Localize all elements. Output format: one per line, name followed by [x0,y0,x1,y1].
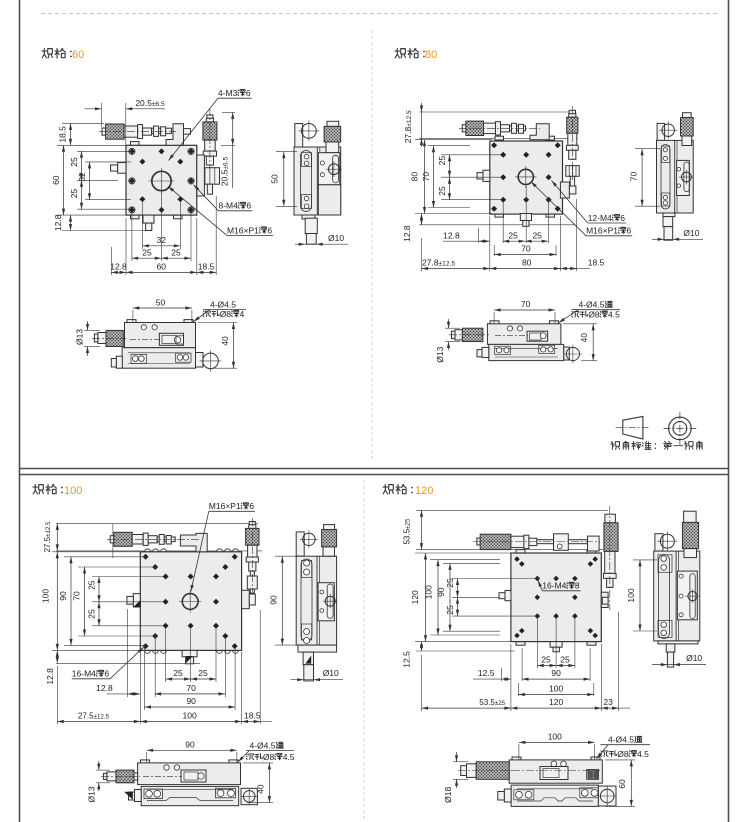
svg-text:50: 50 [270,174,280,184]
svg-text:Ø8: Ø8 [220,309,232,319]
svg-text:25: 25 [87,580,97,590]
svg-text:25: 25 [173,668,183,678]
svg-text:60: 60 [157,261,167,271]
svg-text:90: 90 [551,668,561,678]
svg-text:M16×P1: M16×P1 [586,226,618,236]
svg-text:100: 100 [64,485,82,497]
svg-text:4-Ø4.5: 4-Ø4.5 [608,735,634,745]
svg-text:Ø8: Ø8 [588,310,600,320]
svg-text:6: 6 [246,201,251,211]
svg-text:90: 90 [58,591,68,601]
svg-text:70: 70 [521,299,531,309]
svg-text:4.5: 4.5 [283,752,295,762]
svg-text:32: 32 [77,172,87,182]
svg-text:6: 6 [249,501,254,511]
svg-text:70: 70 [421,172,431,182]
svg-text:27.5±12.5: 27.5±12.5 [43,521,52,553]
svg-text:120: 120 [549,697,563,707]
svg-text:80: 80 [410,172,420,182]
svg-text:40: 40 [220,336,230,346]
svg-text:18.5: 18.5 [588,258,605,268]
svg-text:12.8: 12.8 [53,214,63,231]
svg-text:16-M4: 16-M4 [542,581,566,591]
svg-text:100: 100 [424,585,434,599]
svg-text:M16×P1: M16×P1 [209,501,241,511]
svg-text:4-Ø4.5: 4-Ø4.5 [579,300,605,310]
svg-text:32: 32 [157,235,167,245]
svg-text:100: 100 [549,684,563,694]
svg-text:4-M3: 4-M3 [218,88,238,98]
svg-text:12.8: 12.8 [443,231,460,241]
svg-text:60: 60 [72,49,84,61]
svg-text:4.5: 4.5 [608,310,620,320]
svg-text:Ø8: Ø8 [617,749,629,759]
svg-text:25: 25 [560,655,570,665]
svg-text:6: 6 [267,225,272,235]
svg-text:Ø13: Ø13 [86,786,96,802]
svg-text:12.5: 12.5 [402,651,412,668]
svg-text:6: 6 [246,88,251,98]
svg-text:18.5: 18.5 [58,126,68,143]
svg-text:25: 25 [87,609,97,619]
svg-text:60: 60 [51,175,61,185]
svg-text:53.5±25: 53.5±25 [403,518,412,544]
svg-text:25: 25 [445,605,455,615]
svg-text:100: 100 [626,588,636,602]
svg-text:6: 6 [620,213,625,223]
svg-text:Ø18: Ø18 [443,787,453,803]
svg-text:25: 25 [445,578,455,588]
svg-text:12-M4: 12-M4 [588,213,612,223]
svg-text:120: 120 [410,590,420,604]
svg-text:27.5±12.5: 27.5±12.5 [78,712,110,721]
svg-text:120: 120 [415,485,433,497]
svg-text:25: 25 [437,186,447,196]
svg-text:12.8: 12.8 [45,668,55,685]
svg-text:100: 100 [548,732,562,742]
svg-text:70: 70 [72,591,82,601]
svg-text:25: 25 [142,247,152,257]
svg-text:6: 6 [627,226,632,236]
svg-text:Ø8: Ø8 [263,752,275,762]
svg-text:8-M4: 8-M4 [219,201,239,211]
svg-text:25: 25 [437,156,447,166]
svg-text:40: 40 [256,784,266,794]
svg-text:25: 25 [69,189,79,199]
svg-text:100: 100 [41,589,51,603]
svg-text:4.5: 4.5 [637,749,649,759]
svg-text:4-Ø4.5: 4-Ø4.5 [250,740,276,750]
svg-text:25: 25 [541,655,551,665]
svg-text:70: 70 [629,172,639,182]
svg-text:Ø10: Ø10 [328,233,344,243]
svg-text:16-M4: 16-M4 [72,669,96,679]
svg-text:70: 70 [186,683,196,693]
svg-text:8: 8 [575,581,580,591]
svg-text:Ø10: Ø10 [686,653,702,663]
svg-text:80: 80 [522,258,532,268]
svg-text:12.8: 12.8 [96,683,113,693]
svg-text:60: 60 [617,779,627,789]
svg-text:90: 90 [269,595,279,605]
svg-text:Ø13: Ø13 [435,346,445,362]
svg-text:53.5±25: 53.5±25 [479,698,505,707]
svg-text:90: 90 [185,740,195,750]
svg-text:25: 25 [198,668,208,678]
svg-text:18.5: 18.5 [244,711,261,721]
svg-text:Ø10: Ø10 [683,228,699,238]
svg-text:25: 25 [171,247,181,257]
svg-text:12.8: 12.8 [110,261,127,271]
svg-text:25: 25 [532,231,542,241]
svg-text:Ø10: Ø10 [323,668,339,678]
svg-text:50: 50 [156,298,166,308]
svg-text:25: 25 [508,231,518,241]
svg-text:6: 6 [104,669,109,679]
svg-text:100: 100 [183,711,197,721]
svg-text:25: 25 [69,157,79,167]
svg-text:40: 40 [579,333,589,343]
svg-text:12.5: 12.5 [478,668,495,678]
svg-text:18.5: 18.5 [198,261,215,271]
svg-text:90: 90 [186,696,196,706]
svg-text:Ø13: Ø13 [75,329,85,345]
svg-text:M16×P1: M16×P1 [227,225,259,235]
svg-text:80: 80 [425,49,437,61]
svg-text:23: 23 [603,697,613,707]
svg-text:70: 70 [521,244,531,254]
svg-text:4: 4 [240,309,245,319]
svg-text:12.8: 12.8 [402,225,412,242]
